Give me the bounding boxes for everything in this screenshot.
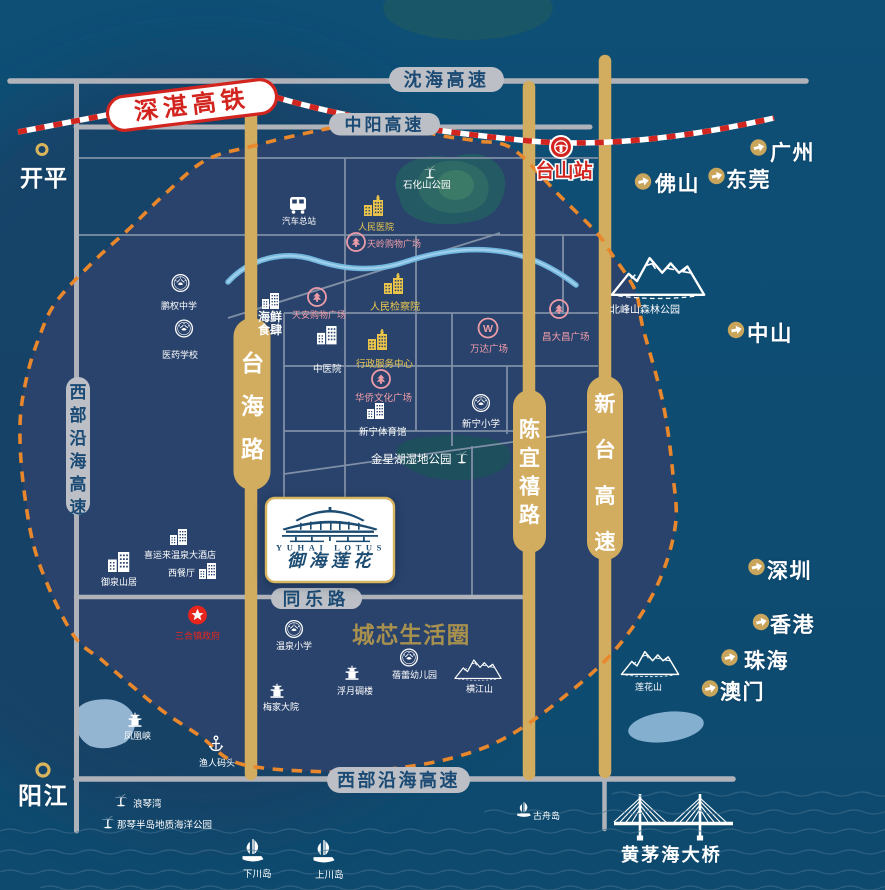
svg-text:御海莲花: 御海莲花 (287, 551, 375, 571)
svg-text:台山站: 台山站 (535, 159, 592, 182)
svg-text:西部沿海高速: 西部沿海高速 (337, 770, 460, 791)
svg-text:中阳高速: 中阳高速 (345, 115, 425, 135)
svg-text:速: 速 (70, 497, 87, 517)
svg-text:高: 高 (595, 484, 616, 508)
svg-text:西: 西 (70, 383, 87, 402)
svg-text:台: 台 (241, 350, 264, 376)
svg-text:禧: 禧 (519, 475, 540, 499)
svg-text:陈: 陈 (519, 418, 540, 442)
svg-text:沿: 沿 (70, 429, 87, 448)
svg-text:高: 高 (70, 474, 87, 494)
svg-text:海: 海 (241, 393, 264, 419)
svg-text:宜: 宜 (519, 446, 540, 470)
svg-text:路: 路 (519, 503, 541, 527)
svg-text:速: 速 (595, 531, 616, 554)
svg-text:沈海高速: 沈海高速 (404, 69, 490, 90)
svg-text:路: 路 (241, 436, 265, 462)
svg-text:台: 台 (595, 438, 616, 462)
svg-text:海: 海 (70, 451, 87, 471)
svg-text:部: 部 (70, 405, 87, 425)
svg-text:同乐路: 同乐路 (283, 589, 351, 609)
svg-text:新: 新 (595, 392, 616, 416)
